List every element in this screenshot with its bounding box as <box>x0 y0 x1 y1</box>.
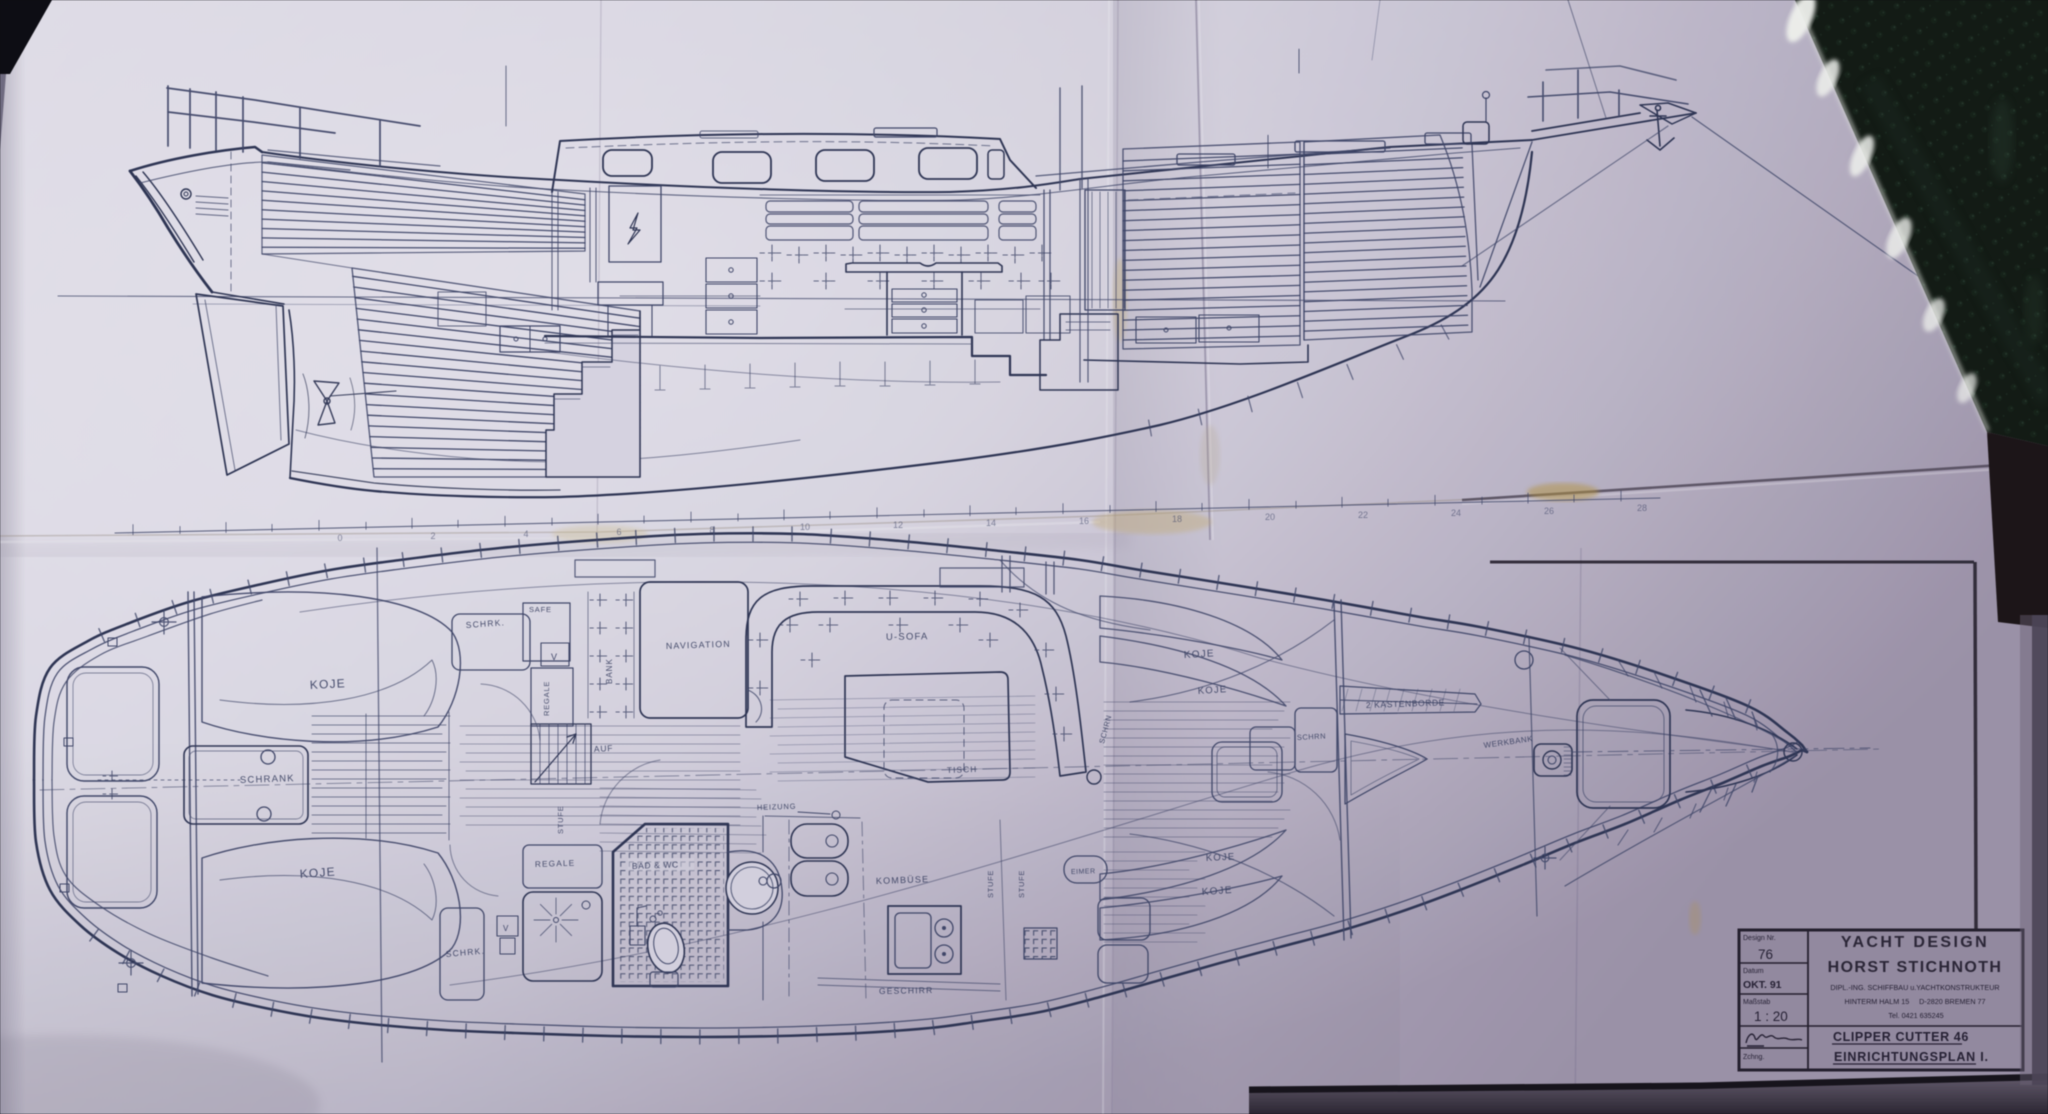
svg-text:GESCHIRR: GESCHIRR <box>879 985 934 996</box>
svg-text:10: 10 <box>800 522 810 532</box>
svg-text:BANK: BANK <box>605 658 614 684</box>
svg-text:12: 12 <box>893 520 903 530</box>
svg-text:EINRICHTUNGSPLAN I.: EINRICHTUNGSPLAN I. <box>1834 1050 1989 1064</box>
svg-text:HEIZUNG: HEIZUNG <box>757 802 797 812</box>
svg-text:2: 2 <box>430 531 435 541</box>
svg-text:SAFE: SAFE <box>529 605 552 614</box>
svg-text:26: 26 <box>1544 506 1554 516</box>
svg-text:1 : 20: 1 : 20 <box>1754 1009 1788 1024</box>
svg-text:6: 6 <box>616 527 621 537</box>
svg-text:HORST STICHNOTH: HORST STICHNOTH <box>1828 959 2003 976</box>
svg-text:KOMBÜSE: KOMBÜSE <box>876 874 930 886</box>
svg-text:KOJE: KOJE <box>299 865 336 881</box>
svg-text:DIPL.-ING. SCHIFFBAU u.YACHTKO: DIPL.-ING. SCHIFFBAU u.YACHTKONSTRUKTEUR <box>1830 983 1999 992</box>
svg-text:SCHRN: SCHRN <box>1297 731 1327 742</box>
svg-text:22: 22 <box>1358 510 1368 520</box>
svg-text:Maßstab: Maßstab <box>1743 999 1770 1006</box>
svg-text:Tel. 0421 635245: Tel. 0421 635245 <box>1888 1011 1943 1020</box>
svg-text:14: 14 <box>986 518 996 528</box>
svg-text:Design Nr.: Design Nr. <box>1743 935 1776 942</box>
svg-text:HINTERM HALM 15 D-2820 BRE: HINTERM HALM 15 D-2820 BREMEN 77 <box>1845 997 1986 1006</box>
svg-text:STUFE: STUFE <box>986 870 995 898</box>
svg-text:SCHRANK: SCHRANK <box>240 773 295 786</box>
svg-text:TISCH: TISCH <box>947 765 978 775</box>
svg-text:EIMER: EIMER <box>1071 868 1096 876</box>
svg-text:KOJE: KOJE <box>1197 684 1227 697</box>
svg-text:4: 4 <box>523 529 528 539</box>
svg-text:STUFE: STUFE <box>1017 870 1026 898</box>
svg-text:KOJE: KOJE <box>1184 648 1215 661</box>
svg-text:REGALE: REGALE <box>542 681 551 716</box>
svg-text:Datum: Datum <box>1743 968 1764 975</box>
svg-text:REGALE: REGALE <box>535 859 576 869</box>
svg-text:YACHT DESIGN: YACHT DESIGN <box>1841 934 1989 951</box>
svg-text:20: 20 <box>1265 512 1275 522</box>
svg-text:U-SOFA: U-SOFA <box>886 631 929 643</box>
svg-text:76: 76 <box>1758 947 1773 962</box>
svg-text:18: 18 <box>1172 514 1182 524</box>
svg-text:V: V <box>503 924 509 933</box>
svg-text:KOJE: KOJE <box>1206 851 1236 864</box>
svg-text:0: 0 <box>337 533 342 543</box>
svg-text:STUFE: STUFE <box>556 805 565 834</box>
svg-text:BAD & WC: BAD & WC <box>632 859 679 871</box>
svg-text:Zchng.: Zchng. <box>1743 1054 1764 1061</box>
svg-text:KOJE: KOJE <box>309 676 346 692</box>
svg-text:24: 24 <box>1451 508 1461 518</box>
svg-text:AUF: AUF <box>594 743 614 754</box>
svg-text:CLIPPER CUTTER 46: CLIPPER CUTTER 46 <box>1833 1030 1969 1044</box>
svg-text:28: 28 <box>1637 503 1647 513</box>
svg-text:KOJE: KOJE <box>1201 885 1233 898</box>
svg-text:16: 16 <box>1079 516 1089 526</box>
svg-text:V: V <box>551 652 557 662</box>
svg-text:OKT. 91: OKT. 91 <box>1743 979 1782 991</box>
